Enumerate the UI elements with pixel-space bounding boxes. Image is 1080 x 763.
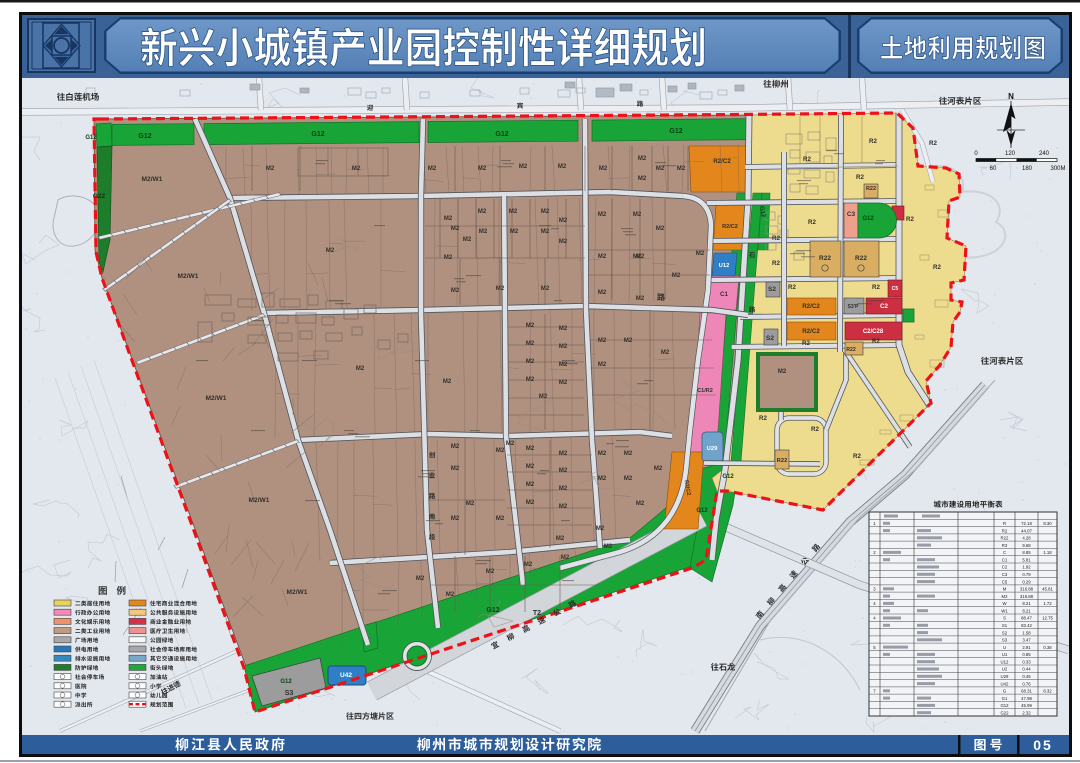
svg-text:R22: R22 xyxy=(777,458,788,464)
svg-text:M2: M2 xyxy=(446,592,455,598)
svg-text:W1: W1 xyxy=(1001,608,1008,613)
svg-text:M2: M2 xyxy=(496,448,505,454)
svg-text:C3: C3 xyxy=(1002,572,1008,577)
svg-text:R2: R2 xyxy=(811,426,819,433)
svg-text:M2: M2 xyxy=(526,482,535,488)
svg-text:U42: U42 xyxy=(340,672,352,679)
svg-text:M2/W1: M2/W1 xyxy=(206,395,227,402)
svg-text:G12: G12 xyxy=(311,131,324,138)
svg-text:M2: M2 xyxy=(356,366,365,372)
svg-text:1.58: 1.58 xyxy=(1022,630,1031,635)
svg-text:M2: M2 xyxy=(526,446,535,452)
svg-text:G12: G12 xyxy=(486,607,499,614)
svg-text:G22: G22 xyxy=(1000,710,1009,715)
svg-text:M2: M2 xyxy=(444,216,453,222)
svg-text:316.88: 316.88 xyxy=(1020,594,1034,599)
svg-text:M2: M2 xyxy=(1002,594,1009,599)
svg-text:0.33: 0.33 xyxy=(1022,659,1031,664)
svg-text:M2: M2 xyxy=(633,212,642,218)
svg-text:R2: R2 xyxy=(772,260,780,267)
svg-text:U42: U42 xyxy=(1001,681,1009,686)
svg-text:M2: M2 xyxy=(561,555,570,561)
svg-text:M2: M2 xyxy=(556,536,565,542)
svg-text:M2: M2 xyxy=(661,350,670,356)
svg-text:M2/W1: M2/W1 xyxy=(178,273,199,280)
svg-text:R22: R22 xyxy=(866,186,876,192)
svg-text:R2: R2 xyxy=(929,140,937,147)
svg-text:R2: R2 xyxy=(759,415,767,422)
svg-text:R2: R2 xyxy=(802,340,810,347)
svg-text:R22: R22 xyxy=(855,255,867,262)
svg-text:240: 240 xyxy=(1039,151,1050,157)
svg-text:R2/C2: R2/C2 xyxy=(802,328,820,335)
svg-text:47.98: 47.98 xyxy=(1021,696,1032,701)
svg-text:M2: M2 xyxy=(624,338,633,344)
svg-text:8.32: 8.32 xyxy=(1043,689,1052,694)
svg-text:M2: M2 xyxy=(654,466,663,472)
svg-text:M2: M2 xyxy=(444,255,453,261)
svg-text:R2: R2 xyxy=(933,264,941,271)
svg-text:R2/C2: R2/C2 xyxy=(713,158,731,165)
svg-text:1.72: 1.72 xyxy=(1043,601,1052,606)
svg-text:M2: M2 xyxy=(451,466,460,472)
svg-text:M2: M2 xyxy=(599,166,608,172)
svg-text:M2: M2 xyxy=(506,441,515,447)
svg-text:316.88: 316.88 xyxy=(1020,587,1034,592)
svg-text:M2/W1: M2/W1 xyxy=(142,176,163,183)
svg-text:R2: R2 xyxy=(1002,528,1008,533)
svg-text:S2: S2 xyxy=(766,335,774,342)
svg-text:M2: M2 xyxy=(696,251,705,257)
svg-text:M2: M2 xyxy=(266,166,275,172)
svg-text:05: 05 xyxy=(1033,737,1053,753)
svg-text:2.91: 2.91 xyxy=(1022,645,1031,650)
svg-text:M2: M2 xyxy=(443,379,452,385)
svg-text:S3'P: S3'P xyxy=(847,304,859,310)
svg-text:M2: M2 xyxy=(677,166,686,172)
svg-text:44.07: 44.07 xyxy=(1021,528,1032,533)
svg-text:M2/W1: M2/W1 xyxy=(249,497,270,504)
svg-text:M2: M2 xyxy=(559,239,568,245)
svg-text:C1: C1 xyxy=(1002,557,1008,562)
svg-text:C2: C2 xyxy=(1002,565,1008,570)
svg-text:M2: M2 xyxy=(636,254,645,260)
svg-text:83.42: 83.42 xyxy=(1021,623,1032,628)
svg-text:G12: G12 xyxy=(862,216,874,222)
svg-text:M2: M2 xyxy=(416,576,425,582)
svg-text:R22: R22 xyxy=(1001,536,1009,541)
svg-text:5.81: 5.81 xyxy=(1022,557,1031,562)
svg-text:M2: M2 xyxy=(624,476,633,482)
svg-text:R2: R2 xyxy=(869,138,877,145)
svg-text:M2: M2 xyxy=(478,166,487,172)
svg-text:M2: M2 xyxy=(541,286,550,292)
svg-text:120: 120 xyxy=(1005,151,1016,157)
svg-text:R22: R22 xyxy=(846,347,856,353)
svg-text:M2: M2 xyxy=(486,569,495,575)
svg-text:M2: M2 xyxy=(559,486,568,492)
svg-text:G12: G12 xyxy=(280,679,292,685)
svg-text:M2: M2 xyxy=(638,176,647,182)
svg-text:M2: M2 xyxy=(559,451,568,457)
svg-text:G12: G12 xyxy=(85,135,97,141)
svg-text:M2: M2 xyxy=(451,444,460,450)
svg-text:U: U xyxy=(1003,645,1006,650)
svg-text:U1: U1 xyxy=(1002,652,1008,657)
svg-text:45.81: 45.81 xyxy=(1042,587,1053,592)
svg-text:M2: M2 xyxy=(352,166,361,172)
svg-text:M2: M2 xyxy=(559,218,568,224)
svg-text:M2: M2 xyxy=(541,229,550,235)
svg-text:R2: R2 xyxy=(856,174,864,181)
svg-text:M2: M2 xyxy=(326,248,335,254)
svg-text:M2: M2 xyxy=(539,394,548,400)
svg-text:M2: M2 xyxy=(638,156,647,162)
svg-text:M2: M2 xyxy=(596,526,605,532)
svg-text:1.92: 1.92 xyxy=(1022,565,1031,570)
svg-text:G12: G12 xyxy=(722,474,734,480)
svg-text:G1: G1 xyxy=(1002,696,1008,701)
svg-text:R2: R2 xyxy=(853,453,861,460)
svg-text:M2: M2 xyxy=(559,504,568,510)
svg-text:12.75: 12.75 xyxy=(1042,616,1053,621)
svg-text:M2: M2 xyxy=(598,338,607,344)
svg-text:72.18: 72.18 xyxy=(1021,521,1032,526)
svg-text:M2: M2 xyxy=(496,286,505,292)
svg-text:C2/C28: C2/C28 xyxy=(863,329,884,335)
svg-text:G12: G12 xyxy=(1000,703,1009,708)
svg-text:G22: G22 xyxy=(93,193,106,200)
svg-text:300M: 300M xyxy=(1050,166,1065,172)
svg-text:R2: R2 xyxy=(788,284,796,291)
svg-text:M2: M2 xyxy=(519,164,528,170)
svg-text:G12: G12 xyxy=(495,131,508,138)
svg-text:M2: M2 xyxy=(526,377,535,383)
svg-text:C2: C2 xyxy=(880,303,888,310)
svg-text:8.30: 8.30 xyxy=(1043,521,1052,526)
svg-text:0.44: 0.44 xyxy=(1022,667,1031,672)
svg-text:C3: C3 xyxy=(847,211,856,218)
svg-text:C1/R2: C1/R2 xyxy=(697,388,713,394)
svg-text:R2: R2 xyxy=(772,235,780,242)
svg-text:M2: M2 xyxy=(526,464,535,470)
svg-text:9.68: 9.68 xyxy=(1022,543,1031,548)
svg-text:8.85: 8.85 xyxy=(1022,550,1031,555)
svg-text:M2: M2 xyxy=(428,166,437,172)
svg-text:M2: M2 xyxy=(463,237,472,243)
svg-text:R2/C2: R2/C2 xyxy=(722,224,738,230)
svg-text:M2: M2 xyxy=(598,212,607,218)
svg-text:M2: M2 xyxy=(509,209,518,215)
svg-text:M2: M2 xyxy=(526,500,535,506)
svg-text:C: C xyxy=(1003,550,1006,555)
svg-text:S3: S3 xyxy=(1002,638,1008,643)
svg-text:0.85: 0.85 xyxy=(1022,652,1031,657)
svg-text:M2: M2 xyxy=(672,273,681,279)
svg-text:0.76: 0.76 xyxy=(1022,681,1031,686)
svg-text:M2: M2 xyxy=(559,326,568,332)
svg-text:N: N xyxy=(1008,92,1014,101)
svg-text:U2: U2 xyxy=(1002,667,1008,672)
svg-text:60: 60 xyxy=(990,166,997,172)
svg-text:88.47: 88.47 xyxy=(1021,616,1032,621)
svg-text:S1: S1 xyxy=(1002,623,1008,628)
svg-text:M2: M2 xyxy=(559,468,568,474)
svg-text:R: R xyxy=(1003,521,1006,526)
svg-text:S: S xyxy=(1003,616,1006,621)
svg-text:2.32: 2.32 xyxy=(1022,710,1031,715)
svg-text:M2: M2 xyxy=(559,362,568,368)
svg-text:M2: M2 xyxy=(558,164,567,170)
svg-text:M2: M2 xyxy=(598,290,607,296)
svg-text:M2: M2 xyxy=(636,296,645,302)
svg-text:M2: M2 xyxy=(524,562,533,568)
svg-text:C1: C1 xyxy=(720,291,728,298)
svg-text:U12: U12 xyxy=(1001,659,1009,664)
svg-text:M2: M2 xyxy=(656,166,665,172)
svg-text:68.31: 68.31 xyxy=(1021,689,1032,694)
svg-text:M2: M2 xyxy=(526,359,535,365)
svg-text:M2: M2 xyxy=(656,226,665,232)
svg-text:R22: R22 xyxy=(819,255,831,262)
svg-text:M2: M2 xyxy=(526,323,535,329)
svg-text:M2/W1: M2/W1 xyxy=(287,589,308,596)
svg-text:8.21: 8.21 xyxy=(1022,601,1031,606)
svg-text:M2: M2 xyxy=(636,501,645,507)
svg-text:M2: M2 xyxy=(559,380,568,386)
svg-text:R2: R2 xyxy=(803,156,811,163)
svg-text:M2: M2 xyxy=(778,369,787,375)
svg-text:0.29: 0.29 xyxy=(1022,579,1031,584)
svg-text:M2: M2 xyxy=(598,362,607,368)
svg-text:M2: M2 xyxy=(466,501,475,507)
svg-text:0.45: 0.45 xyxy=(1022,674,1031,679)
svg-text:G12: G12 xyxy=(696,508,708,514)
svg-text:M2: M2 xyxy=(598,254,607,260)
svg-text:G12: G12 xyxy=(669,128,682,135)
svg-text:R2: R2 xyxy=(906,216,914,223)
svg-text:8.21: 8.21 xyxy=(1022,608,1031,613)
svg-text:M2: M2 xyxy=(598,476,607,482)
svg-text:R2: R2 xyxy=(872,284,880,291)
svg-text:U29: U29 xyxy=(707,446,718,452)
svg-text:R2: R2 xyxy=(808,219,816,226)
svg-text:M2: M2 xyxy=(541,209,550,215)
svg-text:M2: M2 xyxy=(478,209,487,215)
svg-text:M2: M2 xyxy=(604,544,613,550)
svg-text:45.99: 45.99 xyxy=(1021,703,1032,708)
svg-text:G12: G12 xyxy=(138,133,151,140)
svg-text:R2/C2: R2/C2 xyxy=(802,303,820,310)
svg-text:C5: C5 xyxy=(1002,579,1008,584)
svg-text:M2: M2 xyxy=(496,516,505,522)
svg-text:0.38: 0.38 xyxy=(1043,645,1052,650)
svg-text:S2: S2 xyxy=(1002,630,1008,635)
svg-text:M: M xyxy=(1003,587,1007,592)
svg-text:M2: M2 xyxy=(559,344,568,350)
svg-text:1.18: 1.18 xyxy=(1043,550,1052,555)
svg-text:M2: M2 xyxy=(510,229,519,235)
svg-text:M2: M2 xyxy=(451,288,460,294)
svg-text:3.47: 3.47 xyxy=(1022,638,1031,643)
svg-text:U12: U12 xyxy=(719,263,730,269)
svg-text:M2: M2 xyxy=(526,341,535,347)
svg-text:180: 180 xyxy=(1022,166,1033,172)
svg-text:0.79: 0.79 xyxy=(1022,572,1031,577)
svg-text:U29: U29 xyxy=(1001,674,1009,679)
svg-text:M2: M2 xyxy=(624,451,633,457)
svg-text:M2: M2 xyxy=(598,451,607,457)
svg-text:M2: M2 xyxy=(451,516,460,522)
svg-text:R3: R3 xyxy=(1002,543,1008,548)
svg-text:T2: T2 xyxy=(533,610,541,617)
svg-text:4.28: 4.28 xyxy=(1022,536,1031,541)
svg-text:C5: C5 xyxy=(892,286,899,292)
svg-text:S3: S3 xyxy=(285,690,294,697)
svg-text:M2: M2 xyxy=(479,229,488,235)
svg-text:R2: R2 xyxy=(872,338,880,345)
svg-text:M2: M2 xyxy=(451,226,460,232)
svg-text:S2: S2 xyxy=(768,286,776,293)
